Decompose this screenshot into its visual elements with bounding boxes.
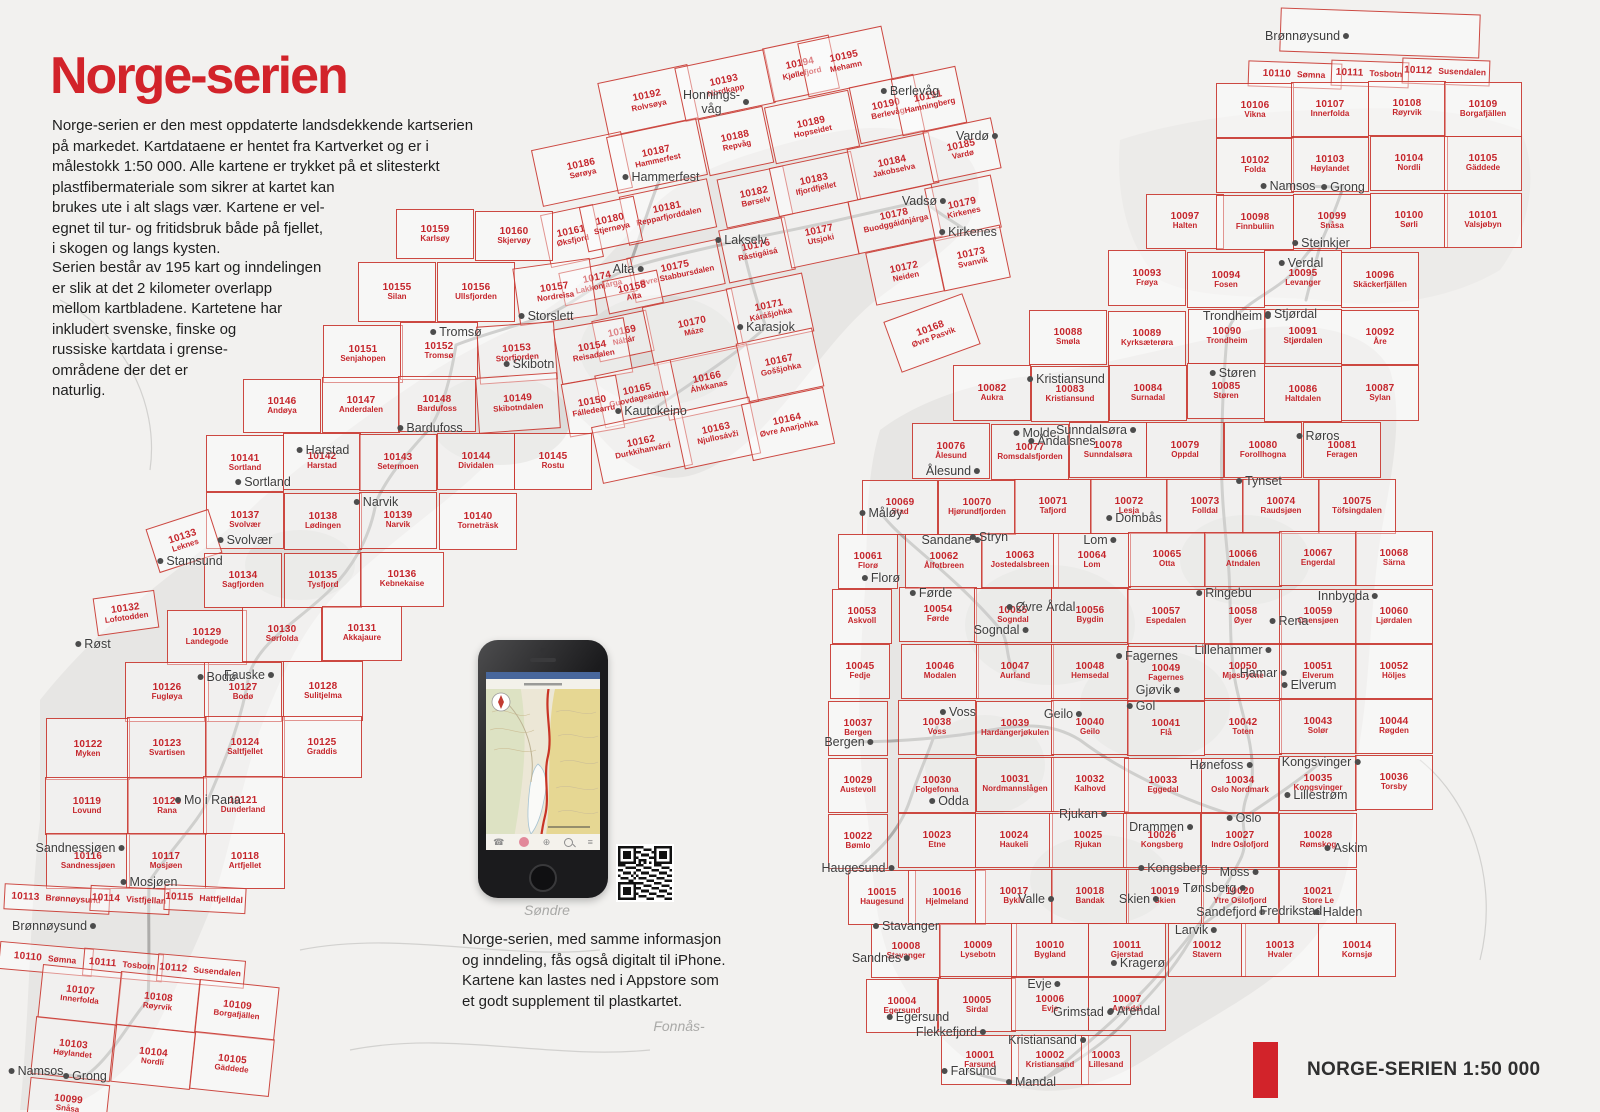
map-sheet-cell: 10043Solør [1279,699,1357,754]
place-label: Sandnessjøen [36,841,125,855]
place-label: Stamsund [157,554,222,568]
sheet-name: Myken [74,750,103,759]
sheet-name: Oppdal [1169,451,1201,460]
place-label: Karasjok [737,320,795,334]
place-name: Svolvær [227,533,273,547]
background-map-label: Søndre [524,902,570,918]
map-sheet-cell: 10013Hvaler [1241,923,1319,977]
sheet-name: Smøla [1054,338,1082,347]
sheet-name: Engerdal [1299,559,1337,568]
place-dot [637,266,643,272]
sheet-name: Støren [1211,392,1240,401]
sheet-name: Fugløya [150,693,185,702]
sheet-number: 10112 [1404,65,1433,77]
map-sheet-cell: 10032Kalhovd [1051,757,1129,812]
place-label: Halden [1314,905,1363,919]
sheet-name: Nordli [138,1057,166,1069]
place-label: Haugesund [822,861,895,875]
place-name: Honnings- våg [683,88,740,116]
place-name: Skibotn [513,357,555,371]
place-name: Grimstad [1053,1005,1104,1019]
sheet-name: Valsjøbyn [1462,221,1503,230]
place-name: Brønnøysund [1265,29,1340,43]
legend: NORGE-SERIEN 1:50 000 [1253,1042,1540,1098]
sheet-name: Sulitjelma [302,692,344,701]
place-dot [868,739,874,745]
sheet-name: Hemsedal [1069,672,1111,681]
place-dot [1321,184,1327,190]
place-name: Flekkefjord [916,1025,977,1039]
place-label: Grimstad [1053,1005,1113,1019]
place-name: Hamar [1240,666,1278,680]
place-name: Bardufoss [406,421,462,435]
sheet-name: Gäddede [1464,164,1502,173]
place-label: Oslo [1227,811,1262,825]
place-name: Røros [1305,429,1339,443]
map-sheet-cell: 10056Bygdin [1051,588,1129,643]
place-dot [1022,627,1028,633]
place-label: Lillehammer [1194,643,1271,657]
place-dot [1210,370,1216,376]
place-dot [980,1029,986,1035]
place-label: Egersund [887,1010,950,1024]
sheet-name: Hattfjelldal [197,894,245,906]
phone-toolbar: ☎ ⊕ ≡ [486,834,600,850]
sheet-name: Ålesund [933,452,969,461]
sheet-name: Vikna [1242,111,1267,120]
place-dot [90,923,96,929]
place-dot [929,798,935,804]
map-sheet-cell: 10118Artfjellet [205,833,285,889]
place-dot [218,537,224,543]
place-name: Tromsø [439,325,482,339]
map-sheet-cell: 10024Haukeli [975,813,1053,868]
map-sheet-cell: 10104Nordli [110,1024,196,1090]
sheet-name: Särna [1381,559,1407,568]
sheet-name: Lom [1082,561,1103,570]
place-dot [268,672,274,678]
map-sheet-cell: 10015Haugesund [848,870,916,925]
place-label: Vardø [956,129,998,143]
place-name: Harstad [306,443,350,457]
place-dot [1108,1008,1114,1014]
place-label: Evje [1027,977,1060,991]
place-label: Ringebu [1196,586,1252,600]
sheet-name: Anderdalen [337,406,385,415]
map-sheet-cell: 10031Nordmannslågen [976,757,1054,812]
place-name: Mandal [1015,1075,1056,1089]
map-sheet-cell: 10100Sørli [1370,193,1448,248]
place-label: Kragerø [1111,956,1165,970]
sheet-name: Lillesand [1087,1061,1126,1070]
map-sheet-cell: 10010Bygland [1011,923,1089,977]
map-sheet-cell: 10023Etne [898,813,976,868]
place-label: Sandefjord [1196,905,1265,919]
sheet-name: Flå [1158,729,1174,738]
sheet-name: Torsby [1379,783,1409,792]
place-name: Støren [1219,366,1257,380]
place-label: Larvik [1175,923,1217,937]
map-sheet-cell: 10130Sørfolda [242,607,322,662]
sheet-name: Haltdalen [1283,395,1323,404]
place-dot [974,468,980,474]
sheet-name: Røgden [1377,727,1411,736]
sheet-name: Haugesund [858,898,906,907]
sheet-name: Kyrksæterøra [1119,339,1175,348]
place-dot [1130,427,1136,433]
place-dot [873,923,879,929]
place-name: Fagernes [1125,649,1178,663]
place-dot [1111,960,1117,966]
place-label: Rena [1270,614,1309,628]
sheet-name: Sylan [1367,394,1392,403]
map-sheet-cell: 10082Aukra [953,365,1031,421]
sheet-name: Graddis [305,748,339,757]
place-label: Lom [1083,533,1116,547]
sheet-name: Ullsfjorden [453,293,499,302]
map-sheet-cell: 10068Särna [1355,531,1433,586]
place-dot [942,1068,948,1074]
sheet-name: Tromsø [423,352,456,361]
sheet-name: Aukra [979,394,1006,403]
place-name: Elverum [1291,678,1337,692]
phone-screen: ☎ ⊕ ≡ [486,672,600,850]
sheet-name: Innerfolda [58,994,101,1007]
place-label: Verdal [1279,256,1323,270]
place-name: Sandane [921,533,971,547]
place-dot [1138,865,1144,871]
place-name: Arendal [1117,1004,1160,1018]
sheet-name: Tafjord [1038,507,1069,516]
place-dot [1296,433,1302,439]
sheet-name: Røyrvik [140,1001,174,1013]
place-dot [1153,896,1159,902]
place-name: Måløy [868,506,902,520]
sheet-name: Aurland [998,672,1032,681]
map-sheet-cell: 10065Otta [1128,532,1206,587]
place-dot [1211,927,1217,933]
sheet-name: Etne [926,841,947,850]
menu-icon: ≡ [588,837,593,847]
place-label: Steinkjer [1292,236,1350,250]
sheet-name: Dividalen [456,462,496,471]
sheet-name: Lødingen [303,522,343,531]
place-name: Kongsberg [1147,861,1207,875]
iphone-paragraph: Norge-serien, med samme informasjon og i… [462,930,772,1012]
place-name: Sandnes [852,951,901,965]
map-sheet-cell: 10140Torneträsk [439,493,517,550]
map-sheet-cell: 10084Surnadal [1109,365,1187,421]
place-label: Tynset [1236,474,1282,488]
place-dot [297,447,303,453]
place-name: Farsund [951,1064,997,1078]
place-dot [1006,1079,1012,1085]
sheet-name: Raudsjøen [1259,507,1304,516]
sheet-name: Sunndalsøra [1082,451,1134,460]
place-name: Kristiansand [1008,1033,1077,1047]
place-name: Larvik [1175,923,1208,937]
map-sheet-cell: 10114Vistfjellan [89,885,170,915]
place-label: Moss [1220,865,1259,879]
sheet-name: Narvik [384,521,412,530]
map-sheet-cell: 10097Halten [1146,194,1224,249]
place-name: Øvre Årdal [1016,600,1076,614]
sheet-name: Folda [1242,166,1267,175]
sheet-name: Høylandet [51,1048,94,1061]
place-dot [1266,647,1272,653]
place-dot [862,575,868,581]
sheet-name: Skjervøy [495,237,532,246]
place-label: Trondheim [1203,309,1271,323]
map-sheet-cell: 10145Rostu [514,433,592,490]
place-label: Grong [63,1069,107,1083]
place-label: Mandal [1006,1075,1056,1089]
sheet-name: Ljørdalen [1374,617,1414,626]
sheet-name: Sandnessjøen [59,862,117,871]
map-sheet-cell: 10147Anderdalen [322,377,400,433]
place-dot [1174,687,1180,693]
place-name: Dombås [1115,511,1162,525]
sheet-name: Kornsjø [1340,951,1374,960]
place-dot [888,865,894,871]
map-sheet-cell: 10029Austevoll [828,758,888,813]
place-label: Tønsberg [1183,881,1246,895]
sheet-name: Nordli [1395,164,1422,173]
place-label: Narvik [354,495,398,509]
sheet-name: Kristiansand [1024,1061,1076,1070]
sheet-name: Skibotndalen [491,402,546,415]
map-sheet-cell: 10067Engerdal [1279,531,1357,586]
map-sheet-cell: 10014Kornsjø [1318,923,1396,977]
map-sheet-cell: 10105Gäddede [1444,136,1522,191]
sheet-name: Kongsberg [1139,841,1185,850]
place-label: Fauske [224,668,274,682]
sheet-number: 10115 [165,891,194,904]
place-dot [121,879,127,885]
place-dot [1111,537,1117,543]
sheet-name: Espedalen [1144,617,1188,626]
place-label: Bergen [824,735,873,749]
map-sheet-cell: 10003Lillesand [1081,1035,1131,1085]
sheet-name: Austevoll [838,786,878,795]
place-dot [1354,759,1360,765]
map-sheet-cell: 10144Dividalen [437,433,515,490]
place-label: Elverum [1282,678,1337,692]
iphone-image: ☎ ⊕ ≡ [478,640,608,898]
sheet-name: Lofotodden [102,611,151,627]
place-label: Hamar [1240,666,1287,680]
place-dot [1252,869,1258,875]
place-label: Støren [1210,366,1257,380]
sheet-name: Hardangerjøkulen [979,729,1051,738]
place-label: Ålesund [926,464,980,478]
sheet-name: Sørli [1398,221,1420,230]
sheet-name: Alta [624,291,645,304]
place-dot [175,797,181,803]
place-label: Skibotn [504,357,555,371]
place-name: Åndalsnes [1037,434,1095,448]
place-name: Askim [1333,841,1367,855]
map-sheet-cell: 10039Hardangerjøkulen [976,701,1054,756]
place-name: Sandefjord [1196,905,1256,919]
place-dot [737,324,743,330]
place-name: Narvik [363,495,398,509]
map-sheet-cell: 10129Landegode [167,610,247,665]
place-dot [1239,885,1245,891]
place-name: Mosjøen [130,875,178,889]
sheet-name: Kebnekaise [378,580,426,589]
place-dot [63,1073,69,1079]
place-name: Odda [938,794,969,808]
sheet-name: Sagfjorden [220,581,266,590]
sheet-name: Florø [856,562,880,571]
sheet-name: Senjahopen [338,355,387,364]
map-sheet-cell: 10052Höljes [1355,644,1433,699]
place-label: Mo i Rana [175,793,241,807]
sheet-name: Rjukan [1073,841,1104,850]
map-sheet-cell: 10057Espedalen [1127,589,1205,644]
place-name: Lillestrøm [1293,788,1347,802]
place-dot [904,955,910,961]
sheet-name: Máze [682,326,707,340]
place-dot [1080,1037,1086,1043]
sheet-name: Ålfotbreen [922,562,966,571]
place-label: Brønnøysund [1265,29,1349,43]
place-dot [519,313,525,319]
place-dot [939,229,945,235]
map-sheet-cell: 10028Rømskog [1279,813,1357,868]
map-sheet-cell: 10073Folldal [1166,479,1244,534]
place-dot [504,361,510,367]
legend-label: NORGE-SERIEN 1:50 000 [1307,1059,1540,1081]
place-name: Drammen [1129,820,1184,834]
place-dot [1280,670,1286,676]
map-sheet-cell: 10136Kebnekaise [360,552,444,607]
sheet-name: Artfjellet [227,862,263,871]
place-label: Odda [929,794,969,808]
place-dot [1246,762,1252,768]
place-dot [1284,792,1290,798]
map-sheet-cell: 10070Hjørundfjorden [938,480,1016,535]
phone-home-button [529,864,557,892]
map-sheet-cell: 10106Vikna [1216,83,1294,138]
place-dot [1324,845,1330,851]
place-name: Hammerfest [631,170,699,184]
sheet-name: Geilo [1078,728,1102,737]
sheet-name: Hammerfest [633,152,684,171]
place-dot [1279,260,1285,266]
map-sheet-cell: 10089Kyrksæterøra [1108,311,1186,366]
place-label: Skien [1119,892,1159,906]
place-dot [1076,711,1082,717]
place-dot [1261,183,1267,189]
place-name: Rjukan [1059,807,1098,821]
sheet-name: Bandak [1074,897,1107,906]
place-dot [1270,618,1276,624]
sheet-name: Fedje [848,672,873,681]
place-dot [940,709,946,715]
sheet-name: Haukeli [998,841,1030,850]
place-label: Vadsø [902,194,946,208]
place-name: Sandnessjøen [36,841,116,855]
place-dot [75,641,81,647]
sheet-name: Voss [926,728,949,737]
place-label: Lillestrøm [1284,788,1347,802]
place-label: Farsund [942,1064,997,1078]
sheet-name: Toten [1230,728,1255,737]
map-sheet-cell: 10066Atndalen [1204,532,1282,587]
map-sheet-cell: 10109Borgafjällen [1444,82,1522,137]
place-label: Florø [862,571,900,585]
place-dot [1227,815,1233,821]
place-dot [157,558,163,564]
sheet-name: Vistfjellan [124,895,168,907]
sheet-name: Setermoen [375,463,420,472]
sheet-name: Surnadal [1129,394,1167,403]
sheet-name: Silan [385,293,408,302]
place-dot [1265,311,1271,317]
place-label: Stryn [970,530,1008,544]
sheet-name: Øyer [1232,617,1254,626]
map-sheet-cell: 10104Nordli [1370,136,1448,191]
place-name: Storslett [528,309,574,323]
sheet-name: Otta [1157,560,1177,569]
map-sheet-cell: 10160Skjervøy [475,211,553,261]
sheet-name: Snåsa [53,1104,81,1112]
place-label: Fagernes [1116,649,1178,663]
place-dot [397,425,403,431]
map-sheet-cell: 10143Setermoen [359,434,437,491]
place-name: Innbygda [1318,589,1369,603]
sheet-name: Atndalen [1224,560,1262,569]
place-name: Gjøvik [1136,683,1171,697]
place-dot [118,845,124,851]
sheet-name: Røyrvik [1390,109,1423,118]
map-sheet-cell: 10142Harstad [283,433,361,490]
place-dot [887,1014,893,1020]
sheet-name: Andøya [265,407,298,416]
place-name: Haugesund [822,861,886,875]
map-sheet-cell: 10128Sulitjelma [283,661,363,721]
place-name: Namsos [18,1064,64,1078]
sheet-name: Finnbuliin [1234,223,1276,232]
sheet-name: Bardufoss [415,405,459,414]
place-name: Kongsvinger [1282,755,1352,769]
phone-screen-map [486,672,600,850]
map-sheet-cell: 10009Lysebotn [939,923,1017,977]
place-dot [910,590,916,596]
place-name: Oslo [1236,811,1262,825]
place-dot [1236,478,1242,484]
place-dot [1372,593,1378,599]
place-label: Gol [1127,699,1155,713]
place-name: Ålesund [926,464,971,478]
place-dot [235,479,241,485]
sheet-name: Folldal [1190,507,1220,516]
place-label: Mosjøen [121,875,178,889]
place-label: Svolvær [218,533,273,547]
place-label: Øvre Årdal [1007,600,1076,614]
sheet-name: Sortland [227,464,263,473]
place-label: Drammen [1129,820,1193,834]
map-sheet-cell: 10155Silan [358,262,436,322]
place-name: Grong [72,1069,107,1083]
sheet-number: 10113 [11,891,40,904]
map-sheet-cell: 10149Skibotndalen [475,372,561,434]
sheet-name: Dunderland [219,806,267,815]
place-name: Kristiansund [1036,372,1105,386]
sheet-name: Torneträsk [456,522,501,531]
